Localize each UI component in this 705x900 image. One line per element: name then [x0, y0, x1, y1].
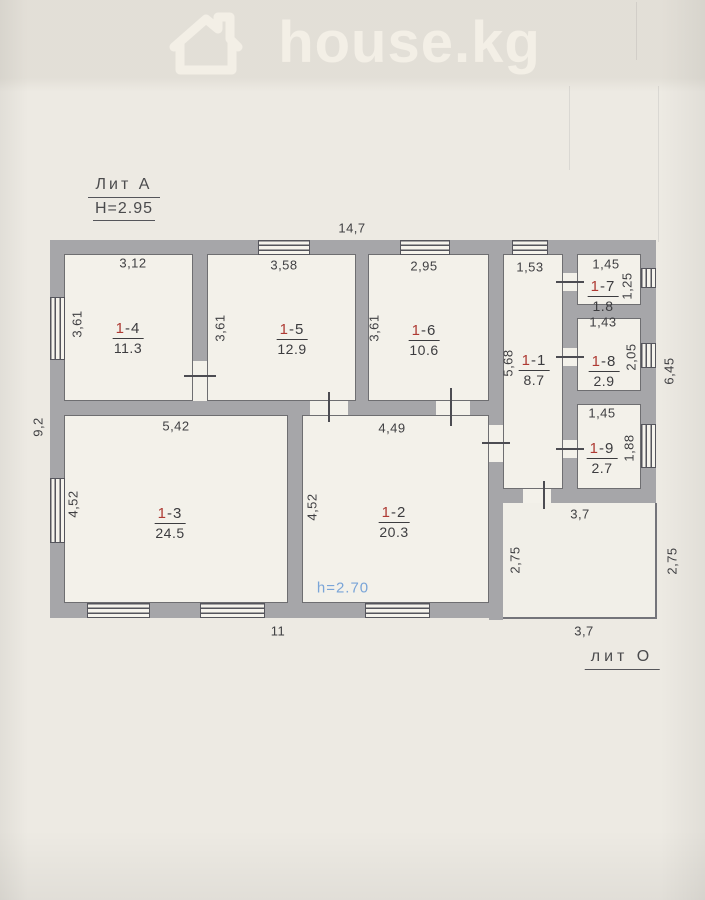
scan-artifact-line	[636, 2, 637, 60]
wall-segment-1-3-1-2	[288, 415, 302, 603]
window	[365, 603, 430, 618]
scan-artifact-line	[658, 86, 659, 242]
room-label-1-2: 1-2 20.3	[379, 504, 410, 540]
wall-segment-1-4-1-5	[193, 254, 207, 361]
annex-label: лит О	[585, 648, 660, 670]
wall-segment-1-8-1-9	[577, 391, 641, 404]
watermark-text: house.kg	[278, 9, 541, 76]
watermark: house.kg	[0, 4, 705, 80]
door-swing-mark	[482, 442, 510, 444]
door-opening	[436, 401, 470, 415]
dimension-label: 5,42	[162, 419, 189, 434]
room-label-1-5: 1-5 12.9	[277, 321, 308, 357]
dimension-label: 3,12	[119, 256, 146, 271]
wall-segment-middle	[64, 401, 489, 415]
window	[50, 478, 65, 543]
house-icon	[164, 9, 248, 75]
dimension-label: 3,61	[213, 314, 228, 341]
dimension-label: 14,7	[338, 221, 365, 236]
door-swing-mark	[450, 388, 452, 426]
building-height-label: H=2.95	[93, 200, 155, 221]
floor-plan-page: house.kg Лит А H=2.95	[0, 0, 705, 900]
room-label-1-9: 1-9 2.7	[587, 440, 618, 476]
room-label-1-8: 1-8 2.9	[589, 353, 620, 389]
door-swing-mark	[556, 356, 584, 358]
dimension-label: 1,53	[516, 260, 543, 275]
title-block: Лит А H=2.95	[78, 176, 170, 221]
door-swing-mark	[543, 481, 545, 509]
dimension-label: 2,05	[624, 343, 639, 370]
window	[512, 240, 548, 255]
window	[87, 603, 150, 618]
window	[50, 297, 65, 360]
dimension-label: 4,49	[378, 421, 405, 436]
dimension-label: 11	[271, 624, 286, 639]
dimension-label: 5,68	[501, 349, 516, 376]
dimension-label: 1,45	[592, 257, 619, 272]
scan-artifact-line	[569, 86, 570, 170]
dimension-label: 3,61	[367, 314, 382, 341]
dimension-label: 2,95	[410, 259, 437, 274]
dimension-label: 1,43	[589, 315, 616, 330]
dimension-label: 2,75	[665, 547, 680, 574]
window	[641, 343, 656, 368]
dimension-label: 3,7	[574, 624, 594, 639]
room-label-1-3: 1-3 24.5	[155, 505, 186, 541]
window	[258, 240, 310, 255]
door-swing-mark	[556, 448, 584, 450]
wall-segment-top	[50, 240, 656, 255]
room-label-1-1: 1-1 8.7	[519, 352, 550, 388]
door-swing-mark	[556, 281, 584, 283]
dimension-label: 4,52	[305, 493, 320, 520]
window	[641, 268, 656, 288]
ceiling-height-note: h=2.70	[317, 580, 369, 597]
dimension-label: 2,75	[508, 546, 523, 573]
dimension-label: 4,52	[66, 490, 81, 517]
dimension-label: 1,45	[588, 406, 615, 421]
room-label-1-7: 1-7 1.8	[588, 278, 619, 314]
dimension-label: 1,25	[620, 272, 635, 299]
building-label: Лит А	[88, 176, 161, 198]
dimension-label: 9,2	[31, 417, 46, 437]
door-swing-mark	[328, 392, 330, 422]
dimension-label: 3,61	[70, 310, 85, 337]
window	[200, 603, 265, 618]
room-label-1-6: 1-6 10.6	[409, 322, 440, 358]
door-opening	[193, 361, 207, 401]
dimension-label: 3,7	[570, 507, 590, 522]
door-swing-mark	[184, 375, 216, 377]
dimension-label: 1,88	[622, 434, 637, 461]
door-opening	[523, 489, 551, 503]
room-label-1-4: 1-4 11.3	[113, 320, 144, 356]
dimension-label: 3,58	[270, 258, 297, 273]
dimension-label: 6,45	[662, 357, 677, 384]
window	[400, 240, 450, 255]
window	[641, 424, 656, 468]
